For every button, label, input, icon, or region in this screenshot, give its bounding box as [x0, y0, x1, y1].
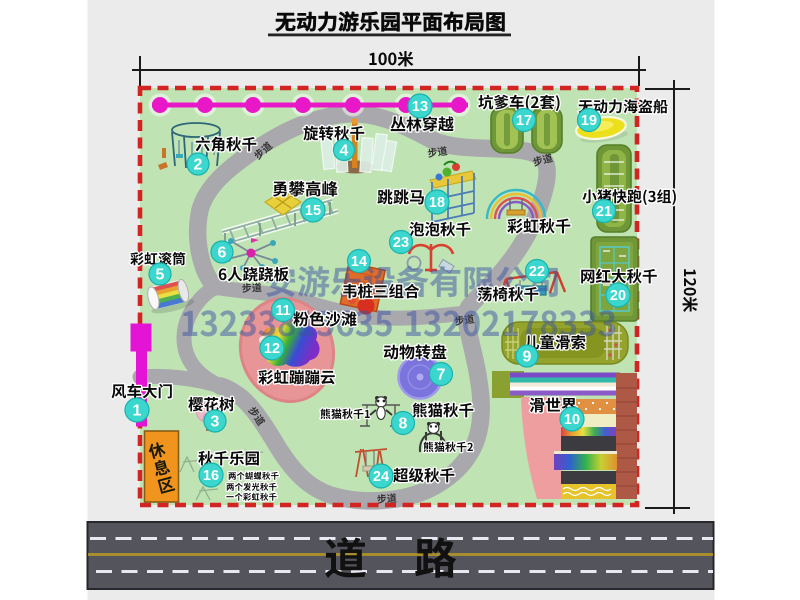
svg-text:1: 1 — [133, 403, 142, 420]
svg-text:22: 22 — [529, 264, 545, 280]
svg-text:2: 2 — [194, 157, 203, 174]
svg-text:4: 4 — [340, 143, 349, 160]
svg-text:18: 18 — [429, 195, 445, 211]
svg-text:17: 17 — [516, 113, 532, 129]
svg-text:6: 6 — [218, 245, 227, 262]
svg-text:20: 20 — [610, 288, 626, 304]
svg-text:16: 16 — [203, 468, 219, 484]
svg-text:5: 5 — [156, 267, 165, 284]
svg-text:19: 19 — [581, 113, 597, 129]
svg-text:3: 3 — [211, 414, 220, 431]
svg-text:10: 10 — [564, 412, 580, 428]
svg-text:15: 15 — [305, 203, 321, 219]
svg-text:11: 11 — [275, 303, 290, 319]
svg-text:13: 13 — [412, 99, 428, 115]
svg-text:7: 7 — [437, 367, 446, 384]
svg-text:8: 8 — [399, 416, 408, 433]
svg-text:12: 12 — [264, 341, 280, 357]
svg-text:9: 9 — [523, 349, 532, 366]
svg-text:21: 21 — [596, 204, 612, 220]
svg-text:23: 23 — [393, 235, 409, 251]
svg-text:14: 14 — [351, 254, 367, 270]
svg-text:24: 24 — [373, 469, 389, 485]
